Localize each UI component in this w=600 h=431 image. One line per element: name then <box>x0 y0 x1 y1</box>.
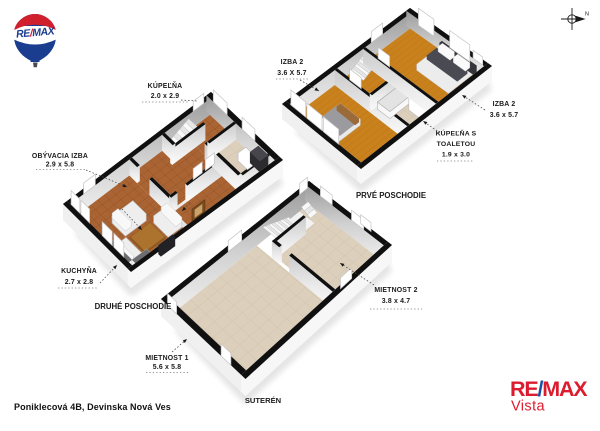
svg-text:3.6 X 5.7: 3.6 X 5.7 <box>277 70 306 77</box>
svg-text:Vista: Vista <box>511 399 546 415</box>
svg-text:RE/MAX: RE/MAX <box>510 377 588 401</box>
svg-text:MIETNOST 2: MIETNOST 2 <box>374 287 417 294</box>
svg-text:DRUHÉ POSCHODIE: DRUHÉ POSCHODIE <box>95 302 172 311</box>
svg-text:2.9 x 5.8: 2.9 x 5.8 <box>46 162 75 169</box>
svg-text:IZBA 2: IZBA 2 <box>493 101 516 108</box>
svg-text:KÚPEĽŇA: KÚPEĽŇA <box>148 81 183 90</box>
svg-text:PRVÉ POSCHODIE: PRVÉ POSCHODIE <box>356 191 426 200</box>
svg-text:KÚPEĽŇA S: KÚPEĽŇA S <box>436 129 477 138</box>
svg-text:3.8 x 4.7: 3.8 x 4.7 <box>382 298 411 305</box>
svg-text:KUCHYŇA: KUCHYŇA <box>61 266 97 275</box>
svg-text:1.9 x 3.0: 1.9 x 3.0 <box>442 152 470 159</box>
svg-text:IZBA 2: IZBA 2 <box>281 59 304 66</box>
svg-text:TOALETOU: TOALETOU <box>437 141 476 148</box>
svg-text:SUTERÉN: SUTERÉN <box>245 396 281 405</box>
svg-text:5.6 x 5.8: 5.6 x 5.8 <box>153 364 182 371</box>
svg-text:MIETNOST 1: MIETNOST 1 <box>145 355 188 362</box>
svg-text:2.7 x 2.8: 2.7 x 2.8 <box>65 279 94 286</box>
svg-text:Poniklecová 4B, Devinska Nová: Poniklecová 4B, Devinska Nová Ves <box>14 402 171 412</box>
svg-text:OBÝVACIA IZBA: OBÝVACIA IZBA <box>32 151 88 160</box>
svg-text:2.0 x 2.9: 2.0 x 2.9 <box>151 93 180 100</box>
svg-text:N: N <box>585 12 589 18</box>
svg-text:3.6 x 5.7: 3.6 x 5.7 <box>490 112 519 119</box>
